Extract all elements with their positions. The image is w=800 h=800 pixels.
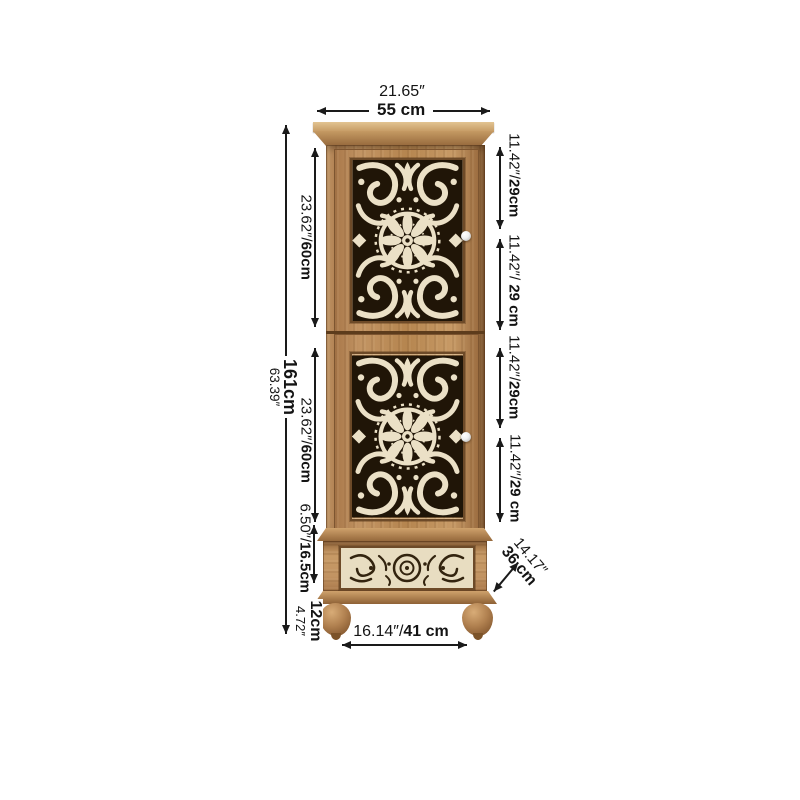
seg2-inches: 11.42″/ (505, 234, 522, 284)
overall-height-inches: 63.39″ (267, 356, 281, 418)
scroll-carving-art (341, 548, 473, 588)
seg1-metric: 29cm (505, 179, 522, 217)
dim-leg-label: 12cm 4.72″ (291, 599, 323, 643)
lower-door-metric: 60cm (297, 445, 314, 483)
seg4-metric: 29 cm (506, 480, 523, 523)
dim-right-seg2-label: 11.42″/ 29 cm (505, 234, 522, 326)
damask-carving-art (352, 160, 463, 321)
bottom-width-inches: 16.14″/ (353, 623, 403, 640)
carved-panel-upper (350, 158, 465, 323)
dim-right-seg2-line (499, 239, 501, 330)
dim-depth-label: 14.17″ 36 cm (493, 529, 554, 594)
leg-metric: 12cm (307, 599, 323, 643)
dim-right-seg1-label: 11.42″/29cm (505, 131, 522, 219)
damask-carving-art (352, 354, 463, 519)
seg3-metric: 29cm (505, 381, 522, 419)
dim-right-seg4-line (499, 438, 501, 522)
door-knob-upper (461, 231, 471, 241)
upper-door-metric: 60cm (297, 242, 314, 280)
seg3-inches: 11.42″/ (505, 335, 522, 381)
lower-door-inches: 23.62″/ (297, 398, 314, 445)
seg4-inches: 11.42″/ (506, 434, 523, 480)
carved-panel-lower (350, 352, 465, 521)
crown-molding (313, 131, 494, 146)
base-molding (314, 591, 497, 604)
dim-top-width-inches: 21.65″ (352, 83, 452, 101)
dim-drawer-label: 6.50″/16.5cm (296, 497, 313, 599)
dim-overall-height-label: 161cm 63.39″ (262, 356, 300, 418)
dim-drawer-line (313, 525, 315, 583)
drawer-metric: 16.5cm (296, 542, 313, 593)
upper-door-inches: 23.62″/ (297, 195, 314, 242)
dim-upper-door-line (314, 148, 316, 327)
door-knob-lower (461, 432, 471, 442)
crown-top (313, 122, 494, 132)
dim-right-seg3-label: 11.42″/29cm (505, 333, 522, 421)
dim-bottom-width-line (342, 644, 467, 646)
seg1-inches: 11.42″/ (505, 133, 522, 179)
dim-right-seg3-line (499, 348, 501, 428)
product-dimension-diagram: 21.65″ 55 cm 161cm 63.39″ 23.62″/60cm 23… (0, 0, 800, 800)
bottom-width-metric: 41 cm (403, 623, 448, 640)
seg2-metric: 29 cm (505, 284, 522, 327)
dim-lower-door-label: 23.62″/60cm (297, 392, 314, 488)
carved-panel-drawer (339, 546, 475, 590)
waist-molding (317, 528, 493, 541)
dim-bottom-width-label: 16.14″/41 cm (336, 623, 466, 641)
dim-upper-door-label: 23.62″/60cm (297, 189, 314, 285)
drawer-inches: 6.50″/ (296, 503, 313, 542)
dim-right-seg4-label: 11.42″/29 cm (506, 432, 523, 524)
leg-inches: 4.72″ (294, 599, 307, 643)
dim-lower-door-line (314, 348, 316, 522)
dim-top-width-metric: 55 cm (369, 101, 433, 120)
bun-foot-right (462, 603, 493, 636)
dim-right-seg1-line (499, 147, 501, 229)
